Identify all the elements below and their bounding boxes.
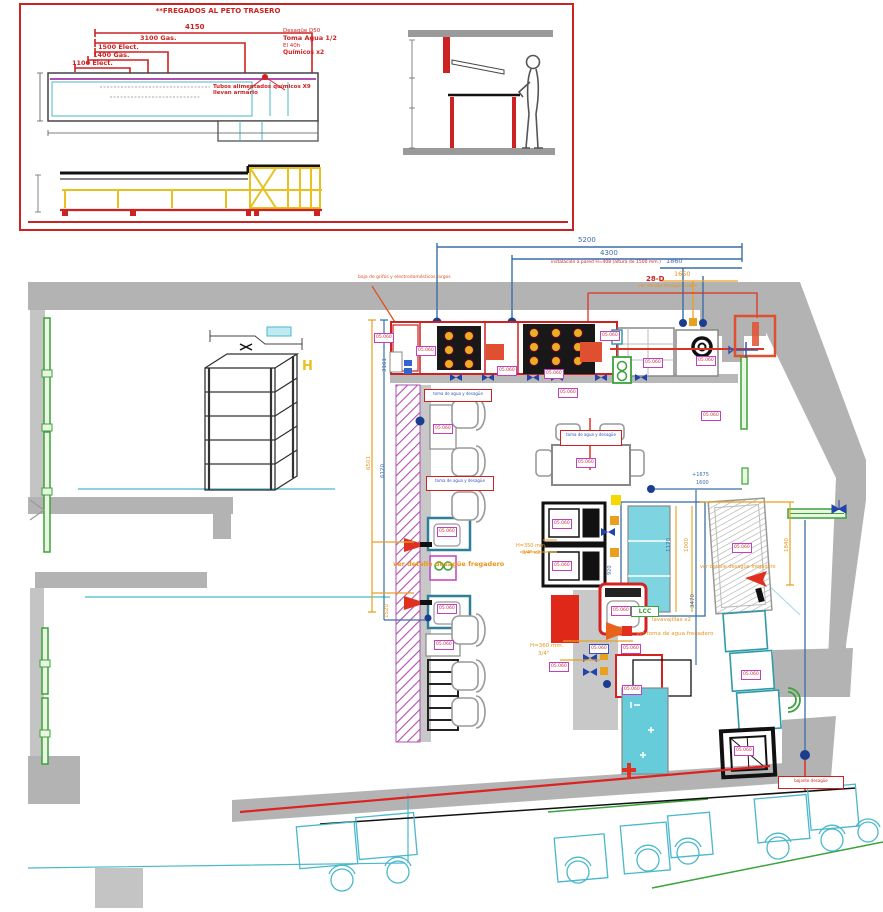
bajante-note: bajante desagüe xyxy=(778,776,844,789)
floorplan-drawing xyxy=(0,0,883,912)
note-fregadero-bar: ver detalle desagüe fregadero xyxy=(393,561,504,568)
dim-1860: 1860 xyxy=(666,258,683,265)
equipment-label: 05.060 xyxy=(434,640,454,650)
water-drain-note: toma de agua y desagüe xyxy=(424,389,492,402)
note-instalacion: instalación a pared H=408 (altura de 150… xyxy=(551,261,661,266)
inset-pipe-note: Tubos alimentados químicos X9 llevan arm… xyxy=(213,84,331,96)
dim-1675: +1675 xyxy=(692,473,709,479)
shelving-unit xyxy=(205,354,297,490)
note-h350b: 3/4" x2 xyxy=(522,551,540,557)
note-lavavajillas: lavavajillas x2 xyxy=(652,617,691,623)
note-h350: H=350 mm. xyxy=(516,544,546,550)
equipment-label: 05.060 xyxy=(433,424,453,434)
equipment-label: 05.060 xyxy=(544,369,564,379)
equipment-label: 05.060 xyxy=(701,411,721,421)
dim-1600: 1600 xyxy=(696,481,709,487)
note-fregadero-right: ver detalle desagüe fregadero xyxy=(700,565,776,571)
dim-1520: 1520 xyxy=(384,604,390,618)
dim-4300: 4300 xyxy=(600,250,618,258)
note-detalle-cobre: ver detalle desagüe cobre xyxy=(638,285,697,290)
equipment-label: 05.060 xyxy=(549,662,569,672)
inset-supply-quimicos: Químicos x2 xyxy=(283,50,324,57)
equipment-label: 05.060 xyxy=(576,458,596,468)
dim-3470: 3470 xyxy=(690,594,696,608)
note-h360: H=360 mm. xyxy=(530,643,563,649)
inset-dim-4150: 4150 xyxy=(185,24,204,32)
bottom-bar-cyan xyxy=(622,688,668,777)
dim-6501: 6501 xyxy=(366,456,372,470)
note-baja-grifos: baja de grifos y electrodomésticos largo… xyxy=(358,276,451,281)
note-28d: 28-D xyxy=(646,276,664,284)
dim-1000: 1000 xyxy=(684,538,690,552)
dim-1170: 1170 xyxy=(666,538,672,552)
floorplan-page: **FREGADOS AL PETO TRASERO 4150 3100 Gas… xyxy=(0,0,883,912)
dim-3161: 3161 xyxy=(382,358,388,372)
refrigeration-units xyxy=(543,503,605,586)
equipment-label: 05.060 xyxy=(600,331,620,341)
equipment-label: 05.060 xyxy=(374,333,394,343)
equipment-label: 05.060 xyxy=(643,358,663,368)
note-h360b: 3/4" xyxy=(538,651,549,657)
cook-line xyxy=(390,322,764,383)
equipment-label: 05.060 xyxy=(497,366,517,376)
equipment-label: 05.060 xyxy=(734,746,754,756)
dim-1840: 1840 xyxy=(784,538,790,552)
equipment-label: 05.060 xyxy=(552,519,572,529)
water-drain-note: toma de agua y desagüe xyxy=(426,476,494,491)
equipment-label: 05.060 xyxy=(589,644,609,654)
inset-title: **FREGADOS AL PETO TRASERO xyxy=(108,8,328,16)
equipment-label: 05.060 xyxy=(437,604,457,614)
dim-920: 920 xyxy=(608,565,614,575)
inset-dim-1100: 1100 Elect. xyxy=(72,60,113,67)
dim-6120: 6120 xyxy=(380,464,386,478)
lcc-badge: LCC xyxy=(631,606,659,617)
equipment-label: 05.060 xyxy=(622,685,642,695)
equipment-label: 05.060 xyxy=(416,346,436,356)
h-marker: H xyxy=(302,360,313,374)
shelf-profile-sketch xyxy=(210,327,302,350)
dim-1650: 1650 xyxy=(674,271,691,278)
equipment-label: 05.060 xyxy=(741,670,761,680)
equipment-label: 05.060 xyxy=(621,644,641,654)
equipment-label: 05.060 xyxy=(552,561,572,571)
note-toma-agua: ver toma de agua fregadero xyxy=(636,631,713,637)
inset-supply-agua: Toma Agua 1/2 xyxy=(283,35,337,42)
equipment-label: 05.060 xyxy=(437,527,457,537)
equipment-label: 05.060 xyxy=(558,388,578,398)
equipment-label: 05.060 xyxy=(696,356,716,366)
inset-dim-3100: 3100 Gas. xyxy=(140,35,176,42)
water-drain-note: toma de agua y desagüe xyxy=(560,430,622,446)
equipment-label: 05.060 xyxy=(732,543,752,553)
dim-5200: 5200 xyxy=(578,237,596,245)
equipment-label: 05.060 xyxy=(611,606,631,616)
